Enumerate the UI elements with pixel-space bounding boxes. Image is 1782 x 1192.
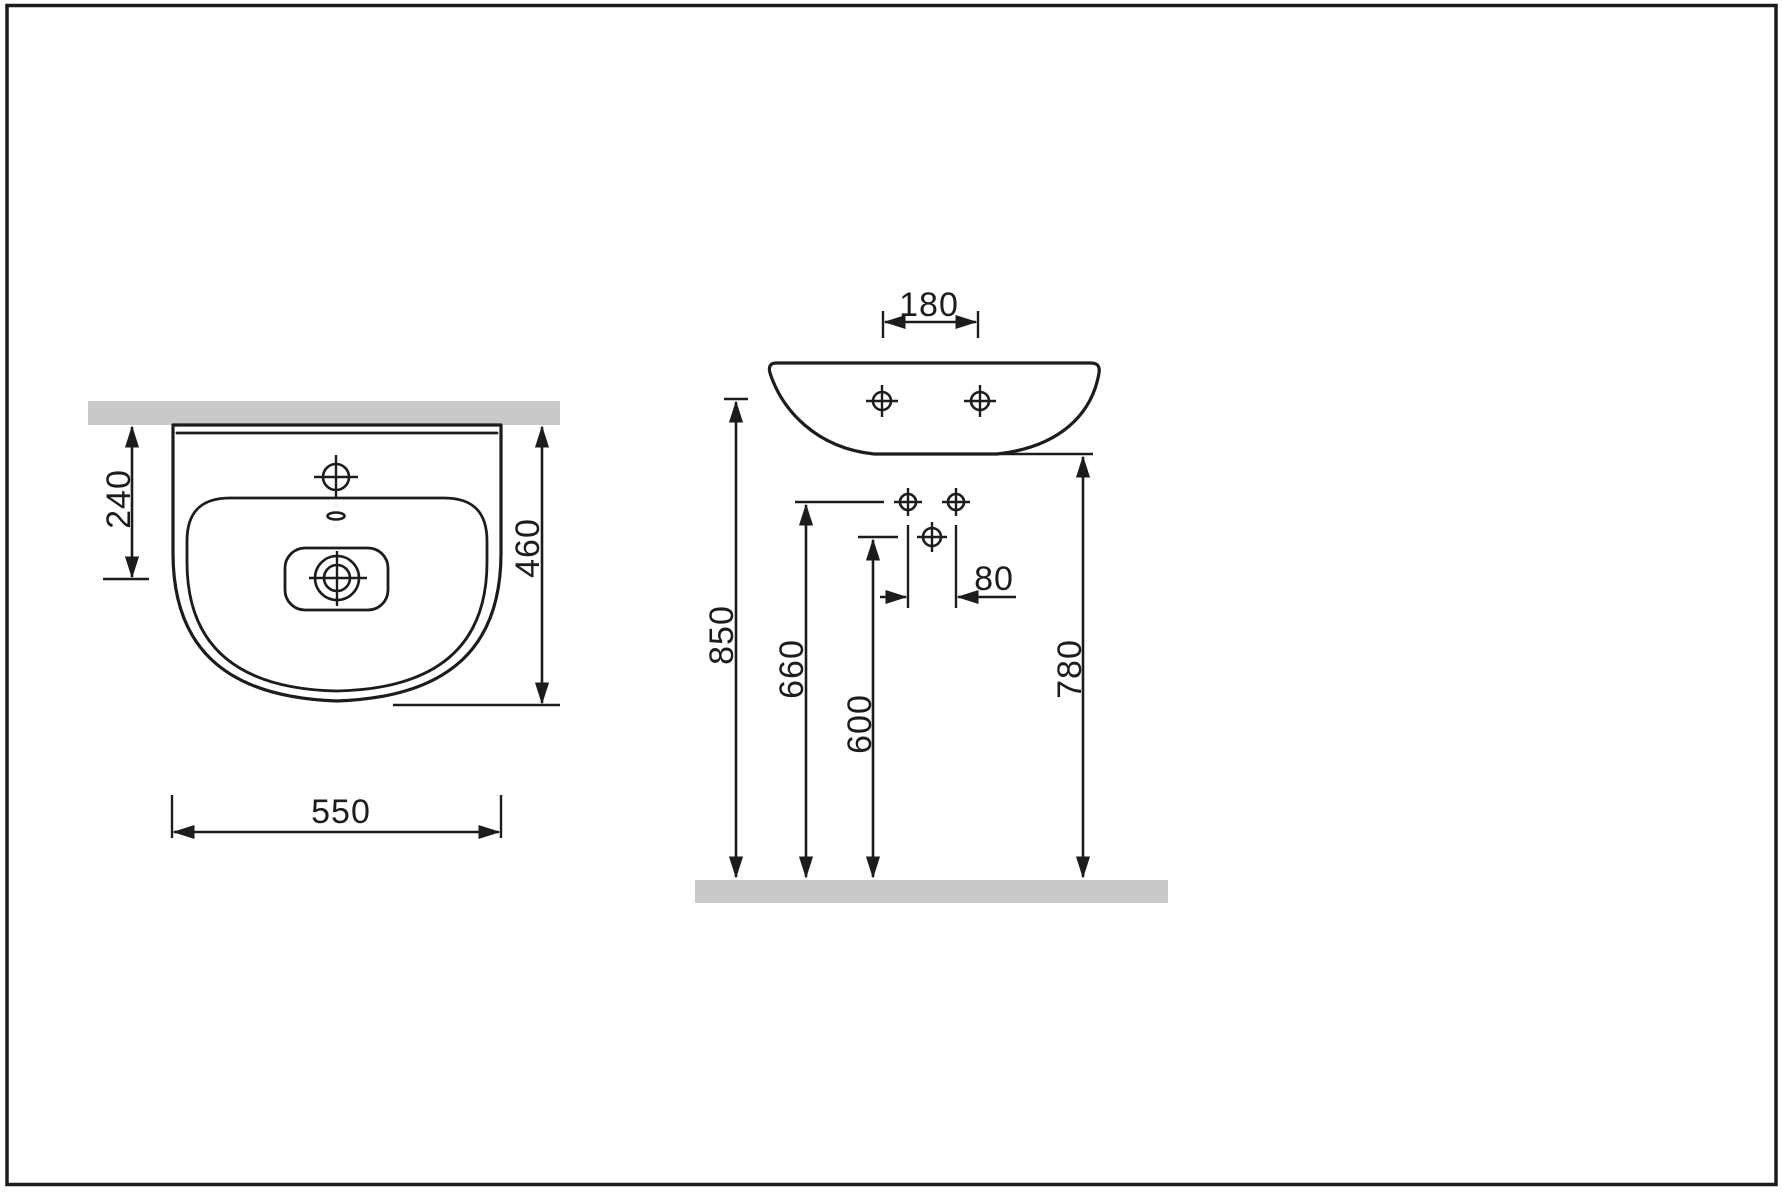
fitting-hole-right [942, 488, 970, 516]
drain-assembly [285, 548, 388, 610]
dim-underside-height: 780 [958, 454, 1093, 877]
fitting-hole-left [894, 488, 922, 516]
drawing-canvas: 240 460 550 [0, 0, 1782, 1192]
top-view: 240 460 550 [88, 401, 560, 838]
dim-fixing-hole-spacing: 180 [883, 286, 978, 338]
fixing-hole-left [866, 385, 898, 417]
front-view: 180 80 850 [695, 286, 1168, 903]
faucet-hole [314, 455, 358, 499]
dim-label-drain-height: 600 [841, 694, 879, 754]
drawing-border [7, 6, 1776, 1185]
dim-label-fitting-holes-height: 660 [773, 639, 811, 699]
basin-profile [769, 363, 1099, 454]
dim-rim-height: 850 [703, 399, 748, 877]
dim-label-wall-to-drain: 240 [100, 469, 138, 529]
dim-label-fixing-hole-spacing: 180 [899, 286, 959, 324]
dim-fitting-holes-height: 660 [773, 502, 884, 877]
dim-fitting-hole-spacing: 80 [880, 525, 1016, 608]
wall-surface [88, 401, 560, 425]
overflow-slot [328, 513, 345, 520]
fixing-hole-right [964, 385, 996, 417]
dim-label-rim-height: 850 [703, 605, 741, 665]
dim-label-underside-height: 780 [1051, 639, 1089, 699]
dim-overall-depth: 460 [393, 427, 560, 705]
dim-wall-to-drain: 240 [100, 427, 149, 579]
drain-outlet-hole [917, 522, 947, 552]
dim-overall-width: 550 [172, 793, 501, 838]
dim-drain-height: 600 [841, 537, 898, 877]
floor-surface [695, 880, 1168, 903]
dim-label-overall-depth: 460 [509, 518, 547, 578]
dim-label-fitting-hole-spacing: 80 [974, 560, 1014, 598]
dim-label-overall-width: 550 [311, 793, 371, 831]
